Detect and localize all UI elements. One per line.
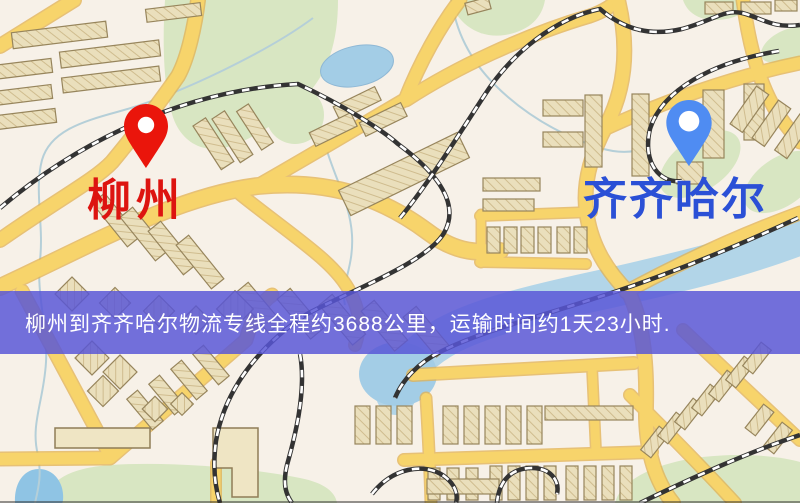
destination-pin-icon [666,100,712,166]
route-info-text: 柳州到齐齐哈尔物流专线全程约3688公里，运输时间约1天23小时. [25,308,671,338]
destination-marker [666,100,712,166]
map-artwork [0,0,800,503]
origin-city-label: 柳州 [87,179,185,223]
map-canvas: 柳州 齐齐哈尔 柳州到齐齐哈尔物流专线全程约3688公里，运输时间约1天23小时… [0,0,800,503]
origin-pin-icon [124,104,168,168]
origin-marker [124,104,168,168]
route-info-banner: 柳州到齐齐哈尔物流专线全程约3688公里，运输时间约1天23小时. [0,291,800,354]
destination-city-label: 齐齐哈尔 [583,178,767,222]
